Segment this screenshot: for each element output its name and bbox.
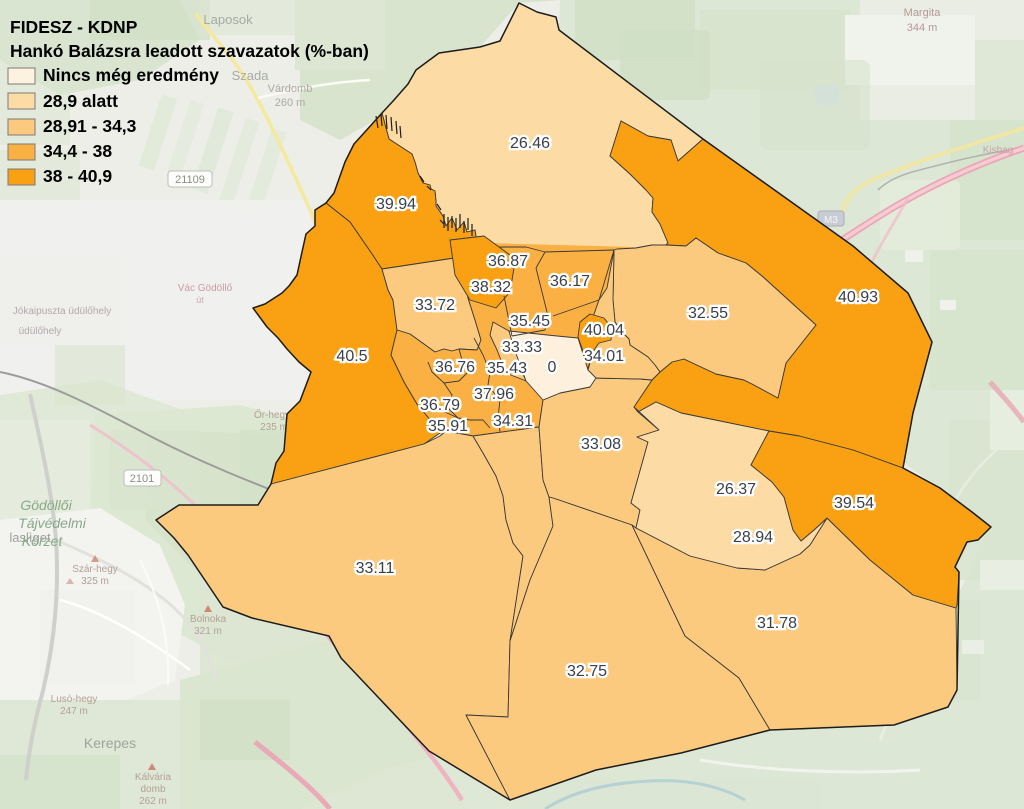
svg-text:28,9 alatt: 28,9 alatt <box>43 91 118 111</box>
svg-text:32.55: 32.55 <box>688 305 728 322</box>
svg-text:35.43: 35.43 <box>487 360 527 377</box>
svg-text:laslìget: laslìget <box>9 530 51 545</box>
svg-text:Lusó-hegy: Lusó-hegy <box>51 694 98 705</box>
svg-text:Jókaipuszta üdülőhely: Jókaipuszta üdülőhely <box>13 306 111 317</box>
svg-text:247 m: 247 m <box>60 706 88 717</box>
svg-text:32.75: 32.75 <box>567 663 607 680</box>
svg-text:Szada: Szada <box>232 68 270 83</box>
svg-text:33.11: 33.11 <box>356 560 395 577</box>
svg-text:út: út <box>196 295 204 305</box>
svg-text:321 m: 321 m <box>194 626 222 637</box>
svg-text:26.37: 26.37 <box>716 481 756 498</box>
svg-text:36.76: 36.76 <box>435 359 475 376</box>
svg-text:Hankó Balázsra leadott szavaza: Hankó Balázsra leadott szavazatok (%-ban… <box>10 41 369 61</box>
svg-text:38.32: 38.32 <box>471 279 511 296</box>
svg-text:Gödöllői: Gödöllői <box>20 497 72 513</box>
svg-text:344 m: 344 m <box>907 22 938 34</box>
svg-text:26.46: 26.46 <box>510 135 550 152</box>
svg-text:260 m: 260 m <box>275 97 306 109</box>
svg-text:37.96: 37.96 <box>474 386 514 403</box>
svg-text:Vác Gödöllő: Vác Gödöllő <box>178 283 233 294</box>
svg-text:325 m: 325 m <box>81 576 109 587</box>
svg-text:38 - 40,9: 38 - 40,9 <box>43 166 112 186</box>
svg-text:33.08: 33.08 <box>581 436 621 453</box>
svg-text:domb: domb <box>140 784 165 795</box>
svg-text:Kálvária: Kálvária <box>135 772 172 783</box>
svg-text:Laposok: Laposok <box>203 12 253 27</box>
svg-text:36.17: 36.17 <box>550 273 590 290</box>
svg-text:235 m: 235 m <box>260 422 288 433</box>
svg-text:Nincs még eredmény: Nincs még eredmény <box>43 65 219 85</box>
svg-text:Szár-hegy: Szár-hegy <box>72 564 118 575</box>
svg-text:34.31: 34.31 <box>493 413 533 430</box>
svg-text:40.5: 40.5 <box>336 348 367 365</box>
svg-text:Tájvédelmi: Tájvédelmi <box>18 515 87 531</box>
svg-text:34.01: 34.01 <box>584 348 624 365</box>
svg-text:Várdomb: Várdomb <box>268 83 313 95</box>
svg-text:39.54: 39.54 <box>834 495 874 512</box>
svg-text:28.94: 28.94 <box>733 529 773 546</box>
svg-text:39.94: 39.94 <box>376 196 416 213</box>
svg-text:Kerepes: Kerepes <box>84 735 136 751</box>
svg-text:31.78: 31.78 <box>757 615 797 632</box>
svg-text:28,91 - 34,3: 28,91 - 34,3 <box>43 116 137 136</box>
svg-text:M3: M3 <box>824 215 838 226</box>
svg-text:40.04: 40.04 <box>584 322 624 339</box>
svg-text:35.91: 35.91 <box>428 418 468 435</box>
svg-text:34,4 - 38: 34,4 - 38 <box>43 141 112 161</box>
svg-text:40.93: 40.93 <box>838 289 878 306</box>
svg-text:FIDESZ - KDNP: FIDESZ - KDNP <box>10 17 138 37</box>
svg-text:33.33: 33.33 <box>502 339 542 356</box>
svg-text:0: 0 <box>548 359 557 376</box>
svg-text:Margita: Margita <box>904 7 942 19</box>
svg-text:üdülőhely: üdülőhely <box>19 326 62 337</box>
svg-text:21109: 21109 <box>175 174 205 186</box>
svg-text:262 m: 262 m <box>139 796 167 807</box>
svg-text:2101: 2101 <box>130 473 154 485</box>
svg-text:36.79: 36.79 <box>420 397 460 414</box>
svg-text:33.72: 33.72 <box>415 297 455 314</box>
svg-text:36.87: 36.87 <box>488 253 528 270</box>
svg-text:Őr-hegy: Őr-hegy <box>254 407 290 421</box>
svg-text:Kisbag: Kisbag <box>983 145 1014 156</box>
svg-text:Bolnoka: Bolnoka <box>190 614 227 625</box>
svg-text:35.45: 35.45 <box>510 313 550 330</box>
